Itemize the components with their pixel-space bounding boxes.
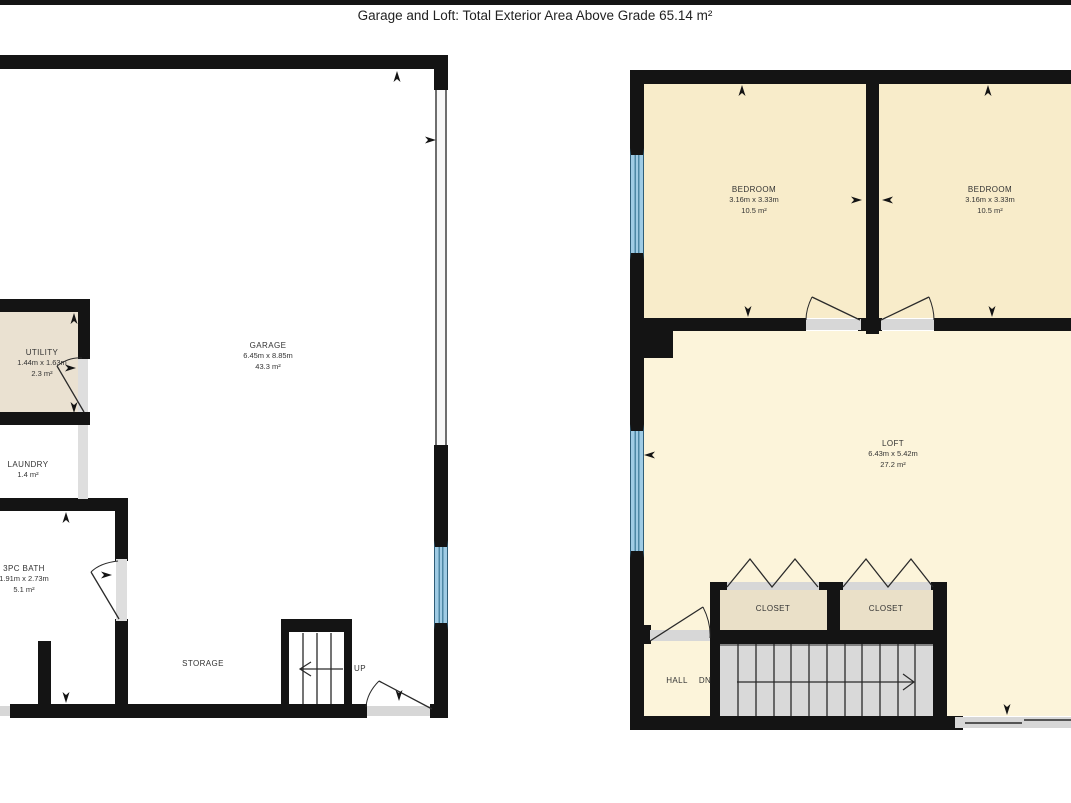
- bedroom-left-door-leaf: [812, 297, 860, 320]
- marker-arrow-right: [101, 572, 112, 579]
- stairs-up-label: UP: [354, 663, 366, 674]
- room-area: 5.1 m²: [0, 585, 49, 596]
- marker-arrow-up: [394, 71, 401, 82]
- closet-left-label: CLOSET: [756, 603, 790, 614]
- symbol-overlay: [0, 0, 1071, 803]
- bedroom-left-door-arc: [806, 297, 812, 320]
- room-name: HALL: [666, 675, 688, 686]
- marker-arrow-down: [989, 306, 996, 317]
- room-name: CLOSET: [869, 603, 903, 614]
- room-name: BEDROOM: [729, 184, 779, 195]
- storage-label: STORAGE: [182, 658, 224, 669]
- floorplan-canvas: Garage and Loft: Total Exterior Area Abo…: [0, 0, 1071, 803]
- closet-right-label: CLOSET: [869, 603, 903, 614]
- marker-arrow-left: [644, 452, 655, 459]
- garage-label: GARAGE 6.45m x 8.85m 43.3 m²: [243, 340, 293, 372]
- garage-entry-door-arc: [366, 681, 379, 707]
- room-name: LAUNDRY: [8, 459, 49, 470]
- room-name: LOFT: [868, 438, 918, 449]
- hall-label: HALL: [666, 675, 688, 686]
- room-area: 10.5 m²: [729, 206, 779, 217]
- marker-arrow-up: [63, 512, 70, 523]
- closet-right-bifold-doors: [843, 559, 933, 587]
- room-dims: 3.16m x 3.33m: [729, 195, 779, 206]
- room-name: STORAGE: [182, 658, 224, 669]
- room-area: 10.5 m²: [965, 206, 1015, 217]
- room-dims: 6.45m x 8.85m: [243, 351, 293, 362]
- bath-door-leaf: [91, 572, 119, 619]
- room-area: 2.3 m²: [17, 369, 67, 380]
- room-dims: 6.43m x 5.42m: [868, 449, 918, 460]
- garage-entry-door-leaf: [379, 681, 432, 709]
- hall-door-leaf: [650, 607, 703, 641]
- laundry-label: LAUNDRY 1.4 m²: [8, 459, 49, 481]
- room-dims: 1.91m x 2.73m: [0, 574, 49, 585]
- room-name: UP: [354, 663, 366, 674]
- bedroom-right-label: BEDROOM 3.16m x 3.33m 10.5 m²: [965, 184, 1015, 216]
- marker-arrow-up: [71, 313, 78, 324]
- room-area: 43.3 m²: [243, 362, 293, 373]
- stairs-down-label: DN: [699, 675, 711, 686]
- room-dims: 3.16m x 3.33m: [965, 195, 1015, 206]
- room-name: 3PC BATH: [0, 563, 49, 574]
- bath-door-arc: [91, 561, 118, 572]
- marker-arrow-right: [425, 137, 436, 144]
- room-name: GARAGE: [243, 340, 293, 351]
- marker-arrow-right: [851, 197, 862, 204]
- utility-label: UTILITY 1.44m x 1.63m 2.3 m²: [17, 347, 67, 379]
- marker-arrow-down: [1004, 704, 1011, 715]
- room-name: UTILITY: [17, 347, 67, 358]
- marker-arrow-down: [71, 402, 78, 413]
- bedroom-left-label: BEDROOM 3.16m x 3.33m 10.5 m²: [729, 184, 779, 216]
- room-name: DN: [699, 675, 711, 686]
- room-dims: 1.44m x 1.63m: [17, 358, 67, 369]
- hall-door-arc: [703, 607, 710, 638]
- loft-label: LOFT 6.43m x 5.42m 27.2 m²: [868, 438, 918, 470]
- bedroom-right-door-arc: [929, 297, 934, 320]
- marker-arrow-up: [739, 85, 746, 96]
- marker-arrow-down: [745, 306, 752, 317]
- room-area: 1.4 m²: [8, 470, 49, 481]
- bath-label: 3PC BATH 1.91m x 2.73m 5.1 m²: [0, 563, 49, 595]
- room-name: CLOSET: [756, 603, 790, 614]
- marker-arrow-up: [985, 85, 992, 96]
- room-name: BEDROOM: [965, 184, 1015, 195]
- room-area: 27.2 m²: [868, 460, 918, 471]
- bedroom-right-door-leaf: [881, 297, 929, 320]
- closet-left-bifold-doors: [727, 559, 818, 587]
- marker-arrow-down: [63, 692, 70, 703]
- marker-arrow-left: [882, 197, 893, 204]
